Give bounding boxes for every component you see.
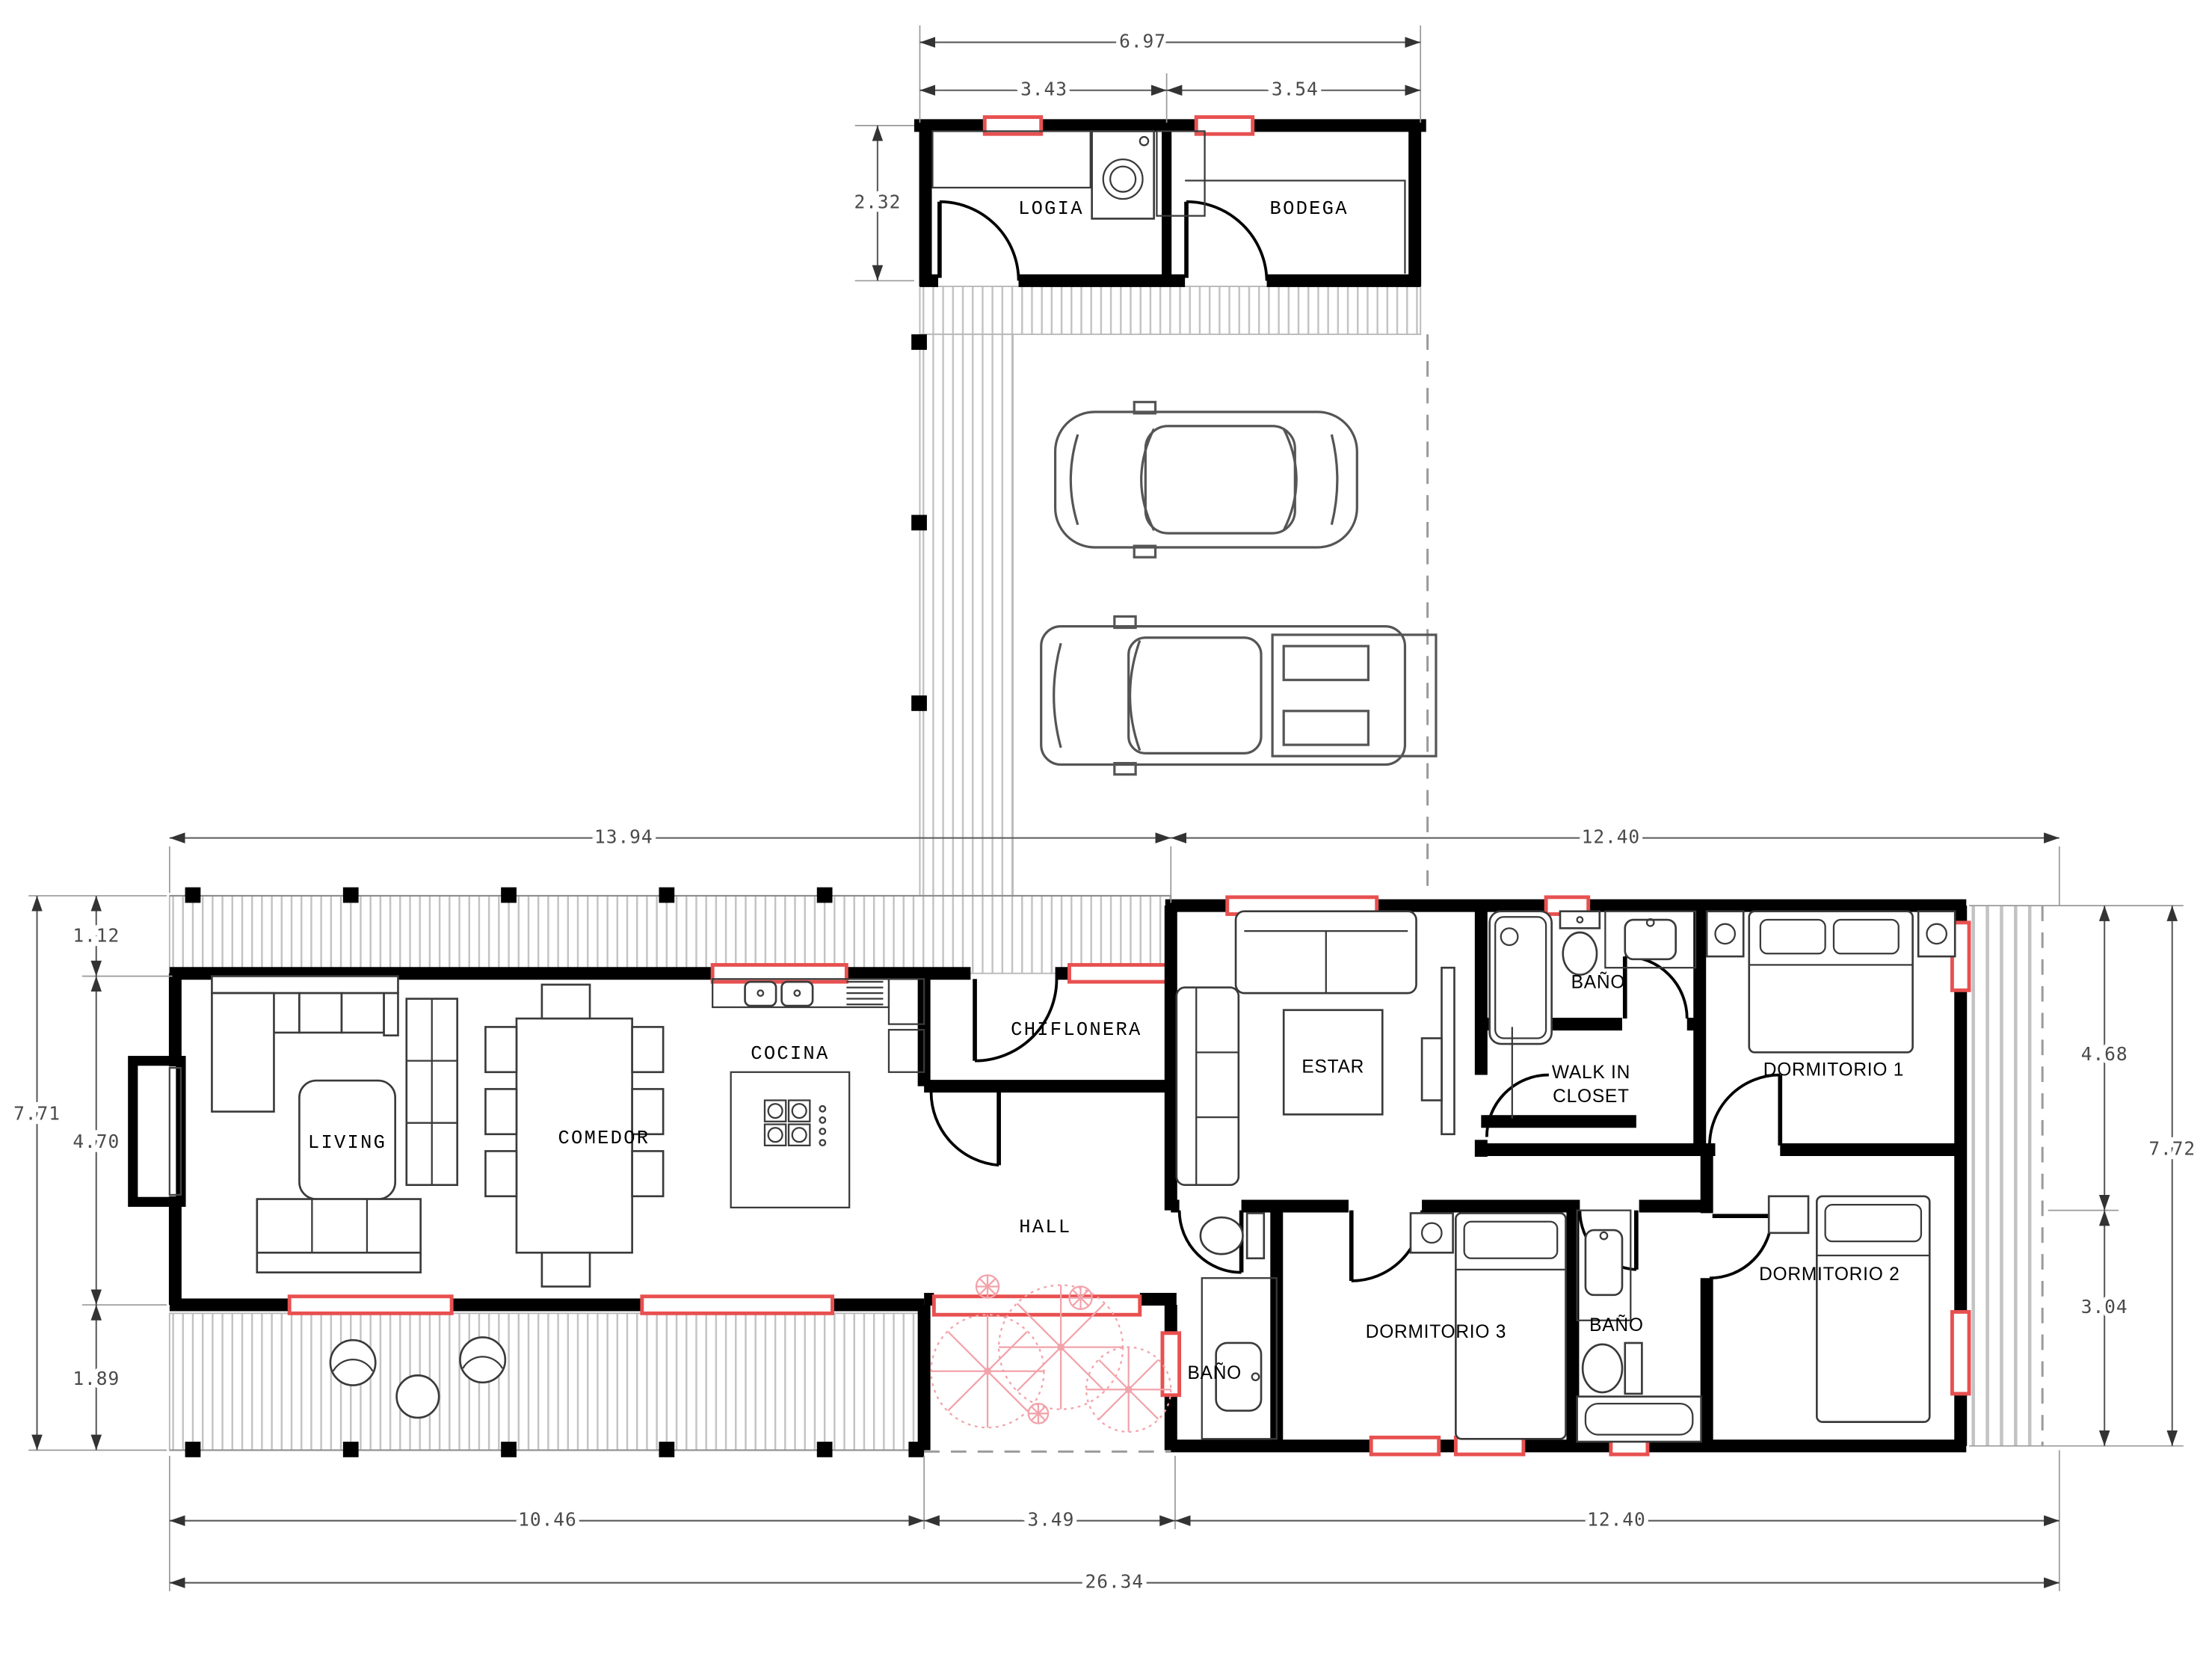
living-window <box>289 1297 452 1314</box>
sedan-car-icon <box>1056 402 1358 558</box>
kitchen-island-icon <box>731 1072 849 1208</box>
bano-small-fixtures <box>1201 1213 1277 1439</box>
annex-building: LOGIA BODEGA <box>914 117 1426 286</box>
dim-terrace-top-height: 1.12 <box>73 925 120 947</box>
toilet-icon <box>1560 912 1600 975</box>
dim-bottom-left-width: 10.46 <box>518 1509 577 1531</box>
washing-machine-icon <box>1092 131 1154 218</box>
dim-left-total-height: 7.71 <box>13 1102 61 1124</box>
flower-icon <box>1069 1287 1091 1309</box>
tree-icon <box>999 1285 1123 1410</box>
chiflonera-window <box>1069 965 1168 982</box>
vanity-sink-icon <box>1605 912 1695 968</box>
dim-right-wing-width-top: 12.40 <box>1582 826 1641 848</box>
terrace-chair-icon <box>460 1337 505 1382</box>
terrace-table-icon <box>397 1375 440 1418</box>
sofa-icon <box>257 1199 421 1273</box>
floor-plan-page: LOGIA BODEGA <box>0 0 2212 1666</box>
flower-icon <box>1029 1404 1048 1423</box>
pickup-truck-icon <box>1041 616 1436 774</box>
floor-plan-drawing: LOGIA BODEGA <box>0 0 2212 1666</box>
room-label-dormitorio2: DORMITORIO 2 <box>1759 1264 1900 1285</box>
driveway <box>1041 402 1436 775</box>
room-label-cocina: COCINA <box>751 1043 829 1065</box>
shower-icon <box>1490 912 1552 1044</box>
dim-right-upper-height: 4.68 <box>2081 1043 2128 1065</box>
dim-courtyard-width: 3.49 <box>1028 1509 1075 1531</box>
room-label-bano-small: BAÑO <box>1188 1363 1242 1383</box>
dim-total-width: 26.34 <box>1085 1571 1144 1593</box>
room-label-hall: HALL <box>1019 1217 1071 1238</box>
flower-icon <box>976 1275 999 1297</box>
dim-terrace-bottom-height: 1.89 <box>73 1368 120 1389</box>
terrace-hatch-bottom <box>170 1313 924 1450</box>
terrace-hatch-top <box>170 896 1171 974</box>
sink-icon <box>745 982 777 1006</box>
hall-courtyard-window <box>934 1297 1139 1315</box>
walkway-hatch-vertical <box>919 334 1013 896</box>
dim-living-height: 4.70 <box>73 1131 120 1152</box>
comedor-window <box>642 1297 833 1314</box>
right-sidewalk-deck <box>1974 906 2030 1446</box>
tree-icon <box>1086 1347 1171 1432</box>
room-label-estar: ESTAR <box>1301 1057 1364 1078</box>
tree-icon <box>931 1315 1044 1427</box>
dormitorio2-window <box>1952 1312 1969 1393</box>
sink-icon <box>782 982 813 1006</box>
terrace-chair-icon <box>330 1340 375 1385</box>
bathtub-icon <box>1577 1397 1701 1442</box>
room-label-bodega: BODEGA <box>1270 198 1349 220</box>
bay-window <box>133 1061 181 1202</box>
dim-right-lower-height: 3.04 <box>2081 1296 2128 1318</box>
dim-annex-total-width: 6.97 <box>1119 31 1166 52</box>
estar-sofa-icon <box>1236 912 1416 993</box>
room-label-bano-top: BAÑO <box>1571 972 1626 992</box>
room-label-dormitorio1: DORMITORIO 1 <box>1763 1060 1904 1080</box>
bodega-shelf <box>1185 180 1405 274</box>
dim-annex-height: 2.32 <box>854 191 901 213</box>
room-label-living: LIVING <box>308 1132 386 1154</box>
room-label-bano-mid: BAÑO <box>1589 1315 1644 1335</box>
tv-console-icon <box>1422 968 1454 1134</box>
shelf-unit-icon <box>407 999 458 1185</box>
room-label-walk-in-2: CLOSET <box>1553 1086 1630 1107</box>
bed-icon-dormitorio1 <box>1707 912 1955 1053</box>
room-label-chiflonera: CHIFLONERA <box>1011 1019 1142 1041</box>
estar-sofa2-icon <box>1177 988 1239 1185</box>
toilet-icon <box>1583 1343 1642 1394</box>
dim-right-wing-width-bottom: 12.40 <box>1587 1509 1646 1531</box>
logia-counter <box>932 131 1090 187</box>
right-wing: ESTAR BAÑO WALK IN CLOSET DORMITORIO 1 D… <box>1165 897 1969 1454</box>
toilet-icon <box>1201 1213 1264 1258</box>
dim-left-wing-width: 13.94 <box>594 826 653 848</box>
dim-right-total-height: 7.72 <box>2148 1138 2196 1160</box>
bed-icon-dormitorio2 <box>1769 1196 1929 1422</box>
dormitorio3-window <box>1371 1437 1439 1454</box>
room-label-logia: LOGIA <box>1018 198 1084 220</box>
dish-rack-icon <box>846 982 883 1004</box>
walkway-hatch-top <box>919 286 1420 334</box>
room-label-walk-in-1: WALK IN <box>1552 1063 1630 1083</box>
dormitorio3-window <box>1455 1437 1524 1454</box>
dim-annex-right-width: 3.54 <box>1272 79 1319 100</box>
dim-annex-left-width: 3.43 <box>1020 79 1068 100</box>
room-label-dormitorio3: DORMITORIO 3 <box>1366 1322 1506 1342</box>
room-label-comedor: COMEDOR <box>558 1128 650 1149</box>
